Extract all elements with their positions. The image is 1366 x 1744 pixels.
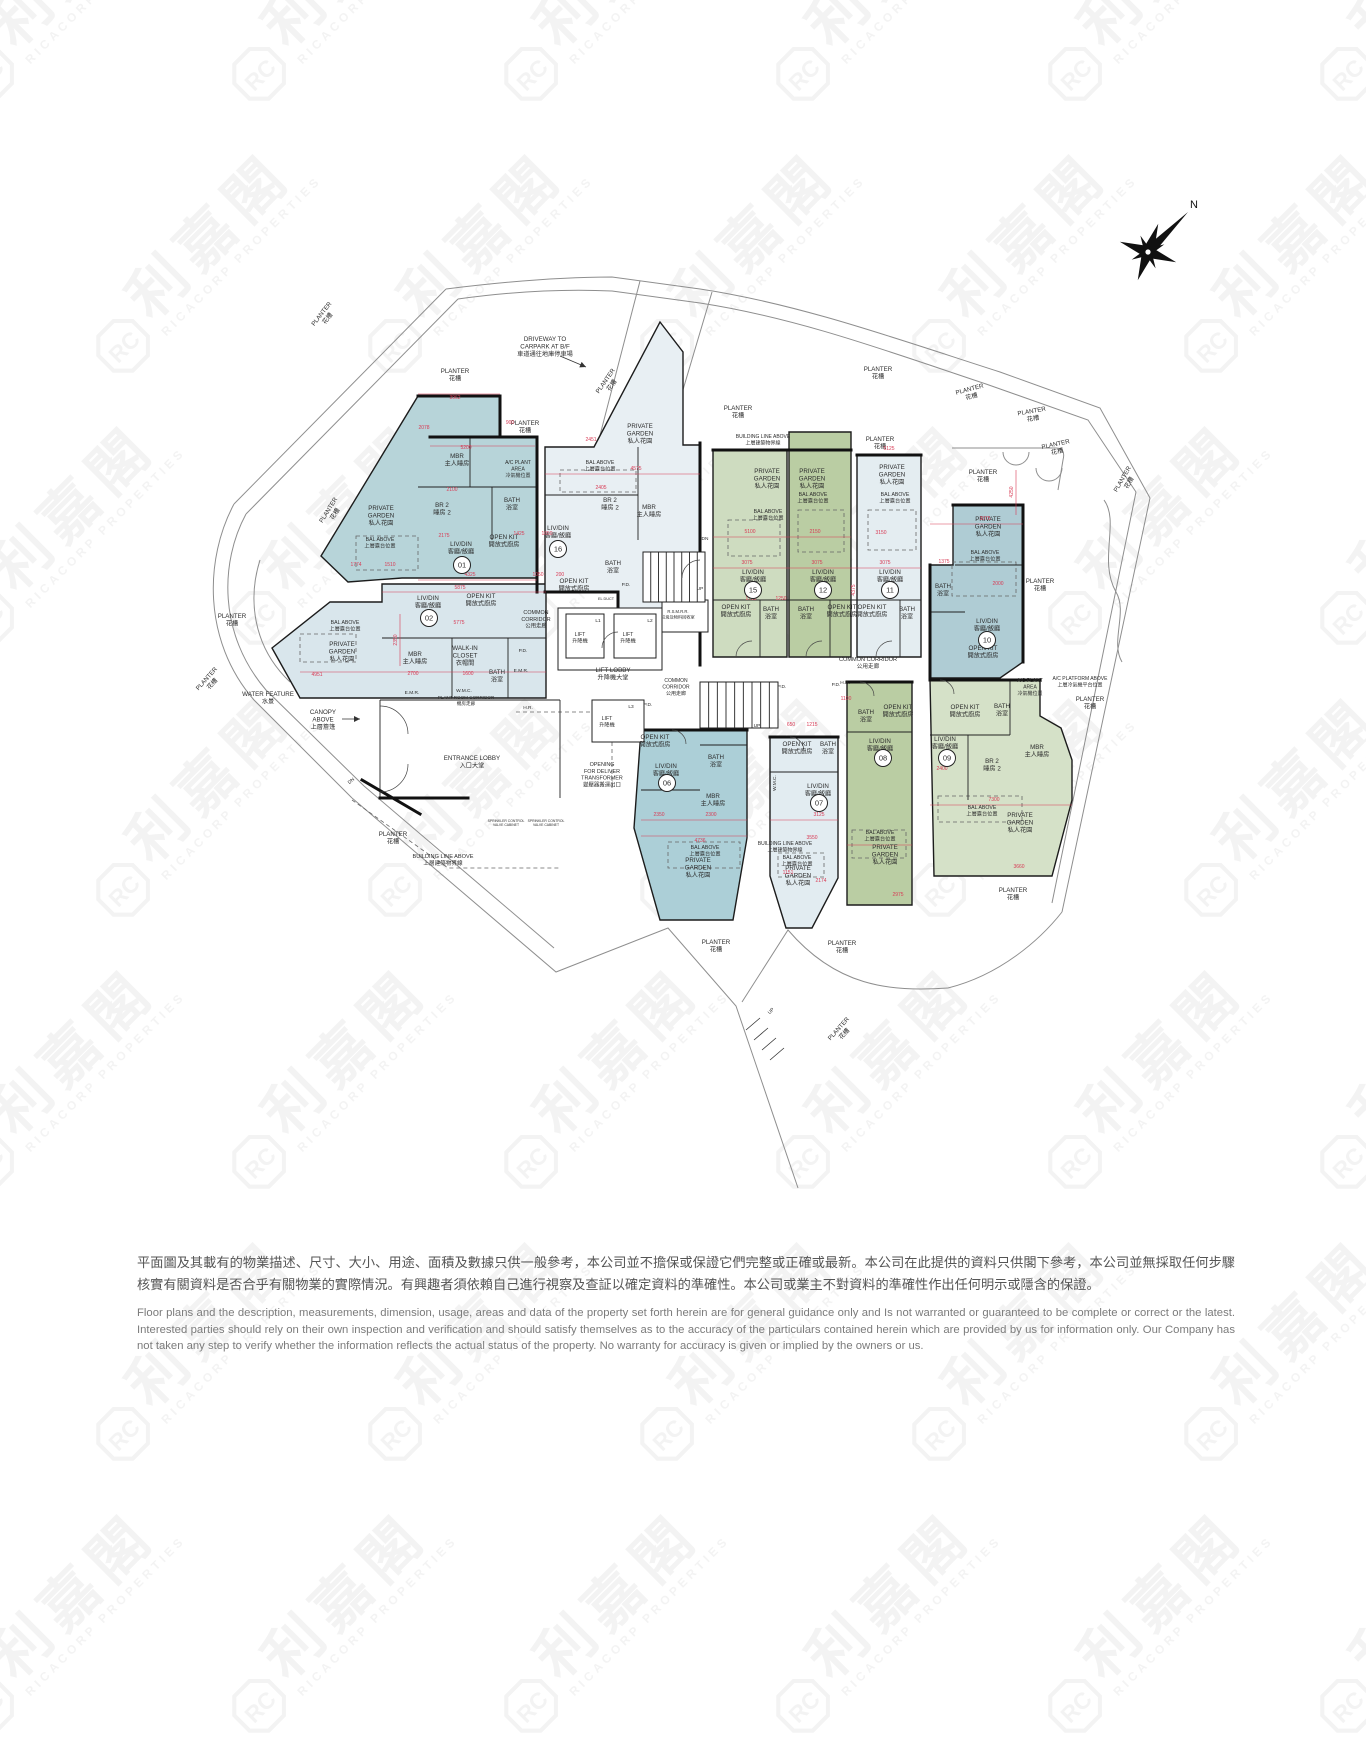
room-label: LIV/DIN客廳/飯廳 bbox=[448, 541, 474, 556]
utility-label: P.D. bbox=[778, 684, 787, 690]
room-label: PRIVATEGARDEN私人花園 bbox=[799, 468, 825, 490]
room-label: LIV/DIN客廳/飯廳 bbox=[415, 595, 441, 610]
dimension-text: 5200 bbox=[460, 445, 471, 451]
dimension-text: 2174 bbox=[815, 878, 826, 884]
room-label: PRIVATEGARDEN私人花園 bbox=[1007, 812, 1033, 834]
watermark: RC利嘉閣RICACORP PROPERTIES bbox=[752, 1492, 1004, 1744]
room-label: PLANTER花槽 bbox=[828, 940, 857, 955]
room-label: PLANTER花槽 bbox=[379, 831, 408, 846]
room-label: BAL ABOVE上層露台位置 bbox=[584, 460, 615, 473]
watermark-cjk-text: 利嘉閣 bbox=[0, 1492, 178, 1689]
dimension-text: 2100 bbox=[446, 487, 457, 493]
utility-label: EL DUCT bbox=[598, 597, 615, 601]
unit-number-text: 12 bbox=[819, 586, 827, 595]
svg-text:RC: RC bbox=[1327, 1686, 1366, 1728]
utility-label: H.R. bbox=[523, 705, 533, 711]
room-label: PRIVATEGARDEN私人花園 bbox=[685, 857, 711, 879]
dimension-text: 5125 bbox=[883, 446, 894, 452]
exterior-step bbox=[746, 1018, 760, 1030]
room-label: ENTRANCE LOBBY入口大堂 bbox=[444, 755, 500, 770]
room-label: OPEN KIT開放式廚房 bbox=[857, 604, 888, 619]
dimension-text: 1375 bbox=[938, 559, 949, 565]
room-label: PLANTER花槽 bbox=[195, 666, 225, 697]
watermark-cjk-text: 利嘉閣 bbox=[797, 1492, 994, 1689]
room-label: PLANTER花槽 bbox=[955, 382, 987, 404]
svg-text:RC: RC bbox=[239, 1686, 281, 1728]
room-label: BAL ABOVE上層露台位置 bbox=[797, 492, 828, 505]
dimension-text: 1100 bbox=[841, 696, 852, 702]
utility-label: P.D. bbox=[519, 648, 528, 654]
svg-text:RC: RC bbox=[919, 1414, 961, 1456]
room-label: BATH浴室 bbox=[820, 741, 836, 756]
north-compass: N bbox=[1096, 182, 1216, 292]
svg-text:RC: RC bbox=[103, 1414, 145, 1456]
utility-label: P.D. bbox=[644, 702, 653, 708]
room-label: A/C PLATFORM ABOVE上層冷氣機平台位置 bbox=[1053, 676, 1109, 688]
room-label: OPEN KIT開放式廚房 bbox=[950, 704, 981, 719]
dimension-text: 3550 bbox=[806, 835, 817, 841]
dimension-text: 2350 bbox=[393, 634, 399, 645]
room-label: OPENINGFOR DELIVERTRANSFORMER變壓器搬運出口 bbox=[581, 762, 623, 788]
unit-number-text: 10 bbox=[983, 636, 991, 645]
room-label: BATH浴室 bbox=[899, 606, 915, 621]
room-label: BATH浴室 bbox=[994, 703, 1010, 718]
unit-number-text: 11 bbox=[886, 586, 894, 595]
utility-label: H.R. bbox=[840, 680, 850, 686]
dimension-text: 1215 bbox=[806, 722, 817, 728]
unit-number-text: 02 bbox=[425, 614, 433, 623]
exterior-step bbox=[762, 1038, 776, 1050]
dimension-text: 3125 bbox=[813, 812, 824, 818]
room-label: PRIVATEGARDEN私人花園 bbox=[754, 468, 780, 490]
dimension-text: 2175 bbox=[438, 533, 449, 539]
room-label: BAL ABOVE上層露台位置 bbox=[752, 509, 783, 522]
room-label: BATH浴室 bbox=[489, 669, 505, 684]
room-label: OPEN KIT開放式廚房 bbox=[640, 734, 671, 749]
utility-label: E.M.R. bbox=[405, 690, 420, 696]
arrow-head bbox=[354, 716, 360, 722]
unit-07-area bbox=[770, 737, 838, 928]
unit-number-text: 06 bbox=[663, 779, 671, 788]
exterior-step bbox=[770, 1048, 784, 1060]
unit-01-area bbox=[321, 396, 537, 582]
room-label: PLANTER花槽 bbox=[1041, 438, 1072, 458]
dimension-text: 1774 bbox=[350, 562, 361, 568]
room-label: PLANTER花槽 bbox=[310, 300, 339, 332]
utility-label: L3 bbox=[628, 704, 634, 710]
dimension-text: 3075 bbox=[979, 516, 990, 522]
utility-label: P.D. bbox=[832, 682, 841, 688]
room-label: PLANTER花槽 bbox=[864, 366, 893, 381]
lift-box bbox=[592, 700, 644, 742]
room-label: COMMONCORRIDOR公用走廊 bbox=[521, 610, 550, 630]
svg-text:RC: RC bbox=[647, 1414, 689, 1456]
watermark: RC利嘉閣RICACORP PROPERTIES bbox=[480, 1492, 732, 1744]
dimension-text: 3660 bbox=[1013, 864, 1024, 870]
dimension-text: 1050 bbox=[532, 572, 543, 578]
unit-02-area bbox=[272, 584, 546, 698]
room-label: PLANTER花槽 bbox=[441, 368, 470, 383]
room-label: PLANTER花槽 bbox=[1017, 406, 1048, 425]
room-label: BATH浴室 bbox=[763, 606, 779, 621]
room-label: PRIVATEGARDEN私人花園 bbox=[329, 641, 355, 663]
dimension-text: 1151 bbox=[783, 870, 794, 876]
dimension-text: 3075 bbox=[741, 560, 752, 566]
dimension-text: 4375 bbox=[851, 584, 857, 595]
dimension-text: 1425 bbox=[513, 531, 524, 537]
utility-label: UP bbox=[754, 723, 761, 729]
unit-number-text: 01 bbox=[458, 561, 466, 570]
room-label: BAL ABOVE上層露台位置 bbox=[969, 550, 1000, 563]
dimension-text: 1510 bbox=[384, 562, 395, 568]
svg-text:RC: RC bbox=[783, 1686, 825, 1728]
dimension-text: 5100 bbox=[744, 529, 755, 535]
room-label: OPEN KIT開放式廚房 bbox=[559, 578, 590, 593]
dimension-text: 4736 bbox=[694, 838, 705, 844]
unit-number-text: 16 bbox=[554, 545, 562, 554]
dimension-text: 200 bbox=[556, 572, 565, 578]
dimension-text: 2451 bbox=[585, 437, 596, 443]
room-label: OPEN KIT開放式廚房 bbox=[721, 604, 752, 619]
room-label: BAL ABOVE上層露台位置 bbox=[781, 855, 812, 868]
room-label: DRIVEWAY TOCARPARK AT B/F車道通往地庫停車場 bbox=[517, 336, 573, 358]
room-label: OPEN KIT開放式廚房 bbox=[827, 604, 858, 619]
room-label: BATH浴室 bbox=[935, 583, 951, 598]
utility-label: L1 bbox=[595, 618, 601, 624]
dimension-text: 4951 bbox=[311, 672, 322, 678]
room-label: BATH浴室 bbox=[858, 709, 874, 724]
svg-text:RC: RC bbox=[511, 1686, 553, 1728]
site-boundary-path bbox=[1036, 468, 1062, 481]
room-label: BAL ABOVE上層露台位置 bbox=[364, 537, 395, 550]
room-label: LIFT LOBBY升降機大堂 bbox=[596, 667, 631, 682]
dimension-text: 900 bbox=[506, 420, 515, 426]
site-boundary-path bbox=[1062, 498, 1150, 912]
room-label: PLANTER花槽 bbox=[218, 613, 247, 628]
room-label: PLANT ROOM CORRIDOR機房走廊 bbox=[438, 695, 495, 707]
unit-06-area bbox=[634, 730, 747, 920]
room-label: LIV/DIN客廳/飯廳 bbox=[974, 618, 1000, 633]
utility-label: E.M.R. bbox=[514, 668, 529, 674]
floor-plan-page: { "watermark":{"cjk":"利嘉閣","sub":"RICACO… bbox=[0, 0, 1366, 1366]
dimension-text: 650 bbox=[787, 722, 796, 728]
dimension-text: 2078 bbox=[418, 425, 429, 431]
dimension-text: 1600 bbox=[462, 671, 473, 677]
dimension-text: 4575 bbox=[630, 466, 641, 472]
site-boundary-path bbox=[948, 912, 1062, 988]
dimension-text: 5875 bbox=[454, 585, 465, 591]
room-label: PLANTER花槽 bbox=[702, 939, 731, 954]
dimension-text: 3075 bbox=[879, 560, 890, 566]
room-label: BAL ABOVE上層露台位置 bbox=[329, 620, 360, 633]
dimension-text: 2350 bbox=[653, 812, 664, 818]
door-arc bbox=[380, 764, 408, 792]
svg-text:RC: RC bbox=[1191, 1414, 1233, 1456]
room-label: PLANTER花槽 bbox=[1076, 696, 1105, 711]
watermark: RC利嘉閣RICACORP PROPERTIES bbox=[208, 1492, 460, 1744]
room-label: WALK-INCLOSET衣帽間 bbox=[452, 645, 478, 667]
room-label: PLANTER花槽 bbox=[595, 367, 624, 399]
site-boundary-path bbox=[1003, 452, 1029, 465]
dimension-text: 1650 bbox=[541, 531, 552, 537]
room-label: PRIVATEGARDEN私人花園 bbox=[785, 865, 811, 887]
room-label: OPEN KIT開放式廚房 bbox=[466, 593, 497, 608]
room-label: CANOPYABOVE上層簷篷 bbox=[310, 709, 336, 731]
disclaimer-english: Floor plans and the description, measure… bbox=[137, 1305, 1235, 1356]
room-label: BUILDING LINE ABOVE上層建築物界線 bbox=[736, 434, 791, 446]
room-label: PLANTER花槽 bbox=[511, 420, 540, 435]
dimension-text: 3962 bbox=[449, 395, 460, 401]
room-label: PLANTER花槽 bbox=[999, 887, 1028, 902]
room-label: BATH浴室 bbox=[708, 754, 724, 769]
watermark-cjk-text: 利嘉閣 bbox=[253, 1492, 450, 1689]
utility-label: W.M.C. bbox=[456, 688, 472, 694]
room-label: BR 2睡房 2 bbox=[433, 502, 451, 517]
dimension-text: 5775 bbox=[453, 620, 464, 626]
dimension-text: 2700 bbox=[407, 671, 418, 677]
room-label: BR 2睡房 2 bbox=[983, 758, 1001, 773]
ricacorp-logo-icon: RC bbox=[1309, 1668, 1366, 1744]
room-label: PRIVATEGARDEN私人花園 bbox=[872, 844, 898, 866]
utility-label: DN bbox=[702, 536, 709, 542]
door-arc bbox=[380, 706, 408, 734]
utility-label: VALVE CABINET bbox=[533, 823, 559, 827]
room-label: PRIVATEGARDEN私人花園 bbox=[627, 423, 653, 445]
watermark-cjk-text: 利嘉閣 bbox=[1069, 1492, 1266, 1689]
room-label: BATH浴室 bbox=[605, 560, 621, 575]
compass-north-label: N bbox=[1190, 199, 1198, 211]
dimension-text: 2300 bbox=[705, 812, 716, 818]
room-label: WATER FEATURE水景 bbox=[242, 691, 294, 706]
room-label: BATH浴室 bbox=[798, 606, 814, 621]
room-label: PLANTER花槽 bbox=[1026, 578, 1055, 593]
room-label: COMMON CORRIDOR公用走廊 bbox=[839, 657, 897, 670]
dimension-text: 3075 bbox=[811, 560, 822, 566]
watermark: RC利嘉閣RICACORP PROPERTIES bbox=[1024, 1492, 1276, 1744]
room-label: COMMONCORRIDOR公用走廊 bbox=[662, 678, 690, 697]
unit-number-text: 09 bbox=[943, 754, 951, 763]
room-label: BAL ABOVE上層露台位置 bbox=[689, 845, 720, 858]
room-label: BUILDING LINE ABOVE上層建築物界線 bbox=[413, 854, 474, 867]
room-label: PRIVATEGARDEN私人花園 bbox=[879, 464, 905, 486]
utility-label: W.M.C. bbox=[772, 775, 778, 791]
utility-label: UP bbox=[697, 586, 704, 592]
dimension-text: 2405 bbox=[595, 485, 606, 491]
room-label: PLANTER花槽 bbox=[827, 1016, 857, 1047]
disclaimer-chinese: 平面圖及其載有的物業描述、尺寸、大小、用途、面積及數據只供一般參考，本公司並不擔… bbox=[137, 1252, 1235, 1296]
disclaimer-block: 平面圖及其載有的物業描述、尺寸、大小、用途、面積及數據只供一般參考，本公司並不擔… bbox=[137, 1252, 1235, 1355]
utility-label: L2 bbox=[647, 618, 653, 624]
unit-number-text: 07 bbox=[815, 799, 823, 808]
utility-label: UP bbox=[767, 1007, 776, 1016]
compass-center bbox=[1145, 249, 1150, 254]
room-label: PLANTER花槽 bbox=[724, 405, 753, 420]
room-label: LIV/DIN客廳/飯廳 bbox=[932, 736, 958, 751]
watermark: RC利嘉閣RICACORP PROPERTIES bbox=[1296, 1492, 1366, 1744]
dimension-text: 2975 bbox=[892, 892, 903, 898]
room-label: PLANTER花槽 bbox=[969, 469, 998, 484]
exterior-step bbox=[754, 1028, 768, 1040]
room-label: PRIVATEGARDEN私人花園 bbox=[368, 505, 394, 527]
utility-label: P.D. bbox=[622, 582, 631, 588]
room-label: BAL ABOVE上層露台位置 bbox=[966, 805, 997, 818]
dimension-text: 2150 bbox=[809, 529, 820, 535]
watermark-cjk-text: 利嘉閣 bbox=[525, 1492, 722, 1689]
svg-text:RC: RC bbox=[1055, 1686, 1097, 1728]
svg-text:RC: RC bbox=[375, 1414, 417, 1456]
watermark: RC利嘉閣RICACORP PROPERTIES bbox=[0, 1492, 188, 1744]
room-label: BATH浴室 bbox=[504, 497, 520, 512]
dimension-text: 3150 bbox=[875, 530, 886, 536]
unit-number-text: 15 bbox=[749, 586, 757, 595]
utility-label: VALVE CABINET bbox=[493, 823, 519, 827]
dimension-text: 4250 bbox=[1009, 486, 1015, 497]
room-label: BAL ABOVE上層露台位置 bbox=[864, 830, 895, 843]
site-boundary-path bbox=[364, 786, 554, 948]
unit-number-text: 08 bbox=[879, 754, 887, 763]
dimension-text: 1250 bbox=[775, 596, 786, 602]
dimension-text: 7300 bbox=[988, 797, 999, 803]
room-label: OPEN KIT開放式廚房 bbox=[782, 741, 813, 756]
room-label: BAL ABOVE上層露台位置 bbox=[879, 492, 910, 505]
dimension-text: 2000 bbox=[992, 581, 1003, 587]
room-label: BR 2睡房 2 bbox=[601, 497, 619, 512]
room-label: OPEN KIT開放式廚房 bbox=[883, 704, 914, 719]
watermark-cjk-text: 利嘉閣 bbox=[1341, 1492, 1366, 1689]
staircase bbox=[700, 682, 778, 728]
